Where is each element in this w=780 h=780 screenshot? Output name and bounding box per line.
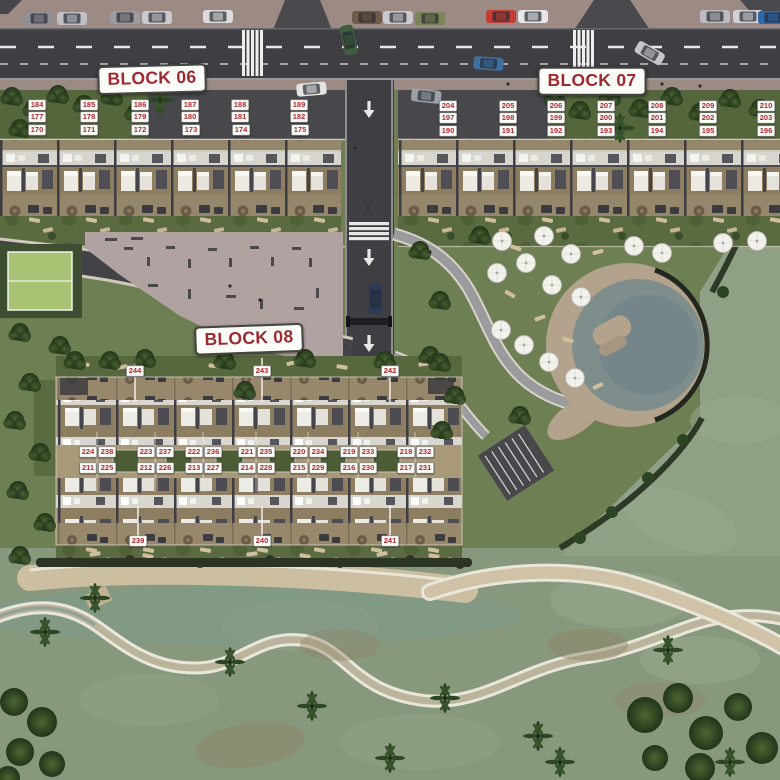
unit-label-200[interactable]: 200: [597, 112, 615, 123]
unit-label-185[interactable]: 185: [80, 99, 98, 110]
unit-label-199[interactable]: 199: [547, 112, 565, 123]
unit-label-221[interactable]: 221: [238, 446, 256, 457]
unit-label-232[interactable]: 232: [416, 446, 434, 457]
unit-label-189[interactable]: 189: [290, 99, 308, 110]
unit-label-231[interactable]: 231: [416, 462, 434, 473]
unit-label-205[interactable]: 205: [499, 100, 517, 111]
unit-label-198[interactable]: 198: [499, 112, 517, 123]
unit-label-172[interactable]: 172: [131, 124, 149, 135]
unit-label-214[interactable]: 214: [238, 462, 256, 473]
unit-label-192[interactable]: 192: [547, 125, 565, 136]
unit-label-230[interactable]: 230: [359, 462, 377, 473]
unit-label-197[interactable]: 197: [439, 112, 457, 123]
unit-label-241[interactable]: 241: [381, 535, 399, 546]
unit-label-193[interactable]: 193: [597, 125, 615, 136]
unit-label-194[interactable]: 194: [648, 125, 666, 136]
unit-label-206[interactable]: 206: [547, 100, 565, 111]
unit-label-171[interactable]: 171: [80, 124, 98, 135]
unit-label-186[interactable]: 186: [131, 99, 149, 110]
unit-label-187[interactable]: 187: [181, 99, 199, 110]
unit-label-170[interactable]: 170: [28, 124, 46, 135]
unit-label-243[interactable]: 243: [253, 365, 271, 376]
unit-label-190[interactable]: 190: [439, 125, 457, 136]
unit-label-196[interactable]: 196: [757, 125, 775, 136]
unit-label-184[interactable]: 184: [28, 99, 46, 110]
unit-label-235[interactable]: 235: [257, 446, 275, 457]
unit-label-227[interactable]: 227: [204, 462, 222, 473]
unit-label-222[interactable]: 222: [185, 446, 203, 457]
unit-label-211[interactable]: 211: [79, 462, 96, 473]
unit-label-237[interactable]: 237: [156, 446, 174, 457]
unit-label-181[interactable]: 181: [231, 111, 249, 122]
labels-layer: BLOCK 06 BLOCK 07 BLOCK 08 1841851861871…: [0, 0, 780, 780]
unit-label-213[interactable]: 213: [185, 462, 203, 473]
masterplan-canvas: BLOCK 06 BLOCK 07 BLOCK 08 1841851861871…: [0, 0, 780, 780]
unit-label-210[interactable]: 210: [757, 100, 775, 111]
unit-label-177[interactable]: 177: [28, 111, 46, 122]
unit-label-203[interactable]: 203: [757, 112, 775, 123]
unit-label-229[interactable]: 229: [309, 462, 327, 473]
unit-label-216[interactable]: 216: [340, 462, 358, 473]
unit-label-182[interactable]: 182: [290, 111, 308, 122]
unit-label-226[interactable]: 226: [156, 462, 174, 473]
unit-label-225[interactable]: 225: [98, 462, 116, 473]
unit-label-208[interactable]: 208: [648, 100, 666, 111]
unit-label-223[interactable]: 223: [137, 446, 155, 457]
unit-label-215[interactable]: 215: [290, 462, 308, 473]
unit-label-224[interactable]: 224: [79, 446, 97, 457]
unit-label-191[interactable]: 191: [499, 125, 517, 136]
unit-label-240[interactable]: 240: [253, 535, 271, 546]
unit-label-233[interactable]: 233: [359, 446, 377, 457]
unit-label-179[interactable]: 179: [131, 111, 149, 122]
unit-label-201[interactable]: 201: [648, 112, 666, 123]
unit-label-178[interactable]: 178: [80, 111, 98, 122]
unit-label-236[interactable]: 236: [204, 446, 222, 457]
unit-label-202[interactable]: 202: [699, 112, 717, 123]
unit-label-217[interactable]: 217: [397, 462, 415, 473]
block-06-sign[interactable]: BLOCK 06: [97, 63, 207, 94]
unit-label-195[interactable]: 195: [699, 125, 717, 136]
unit-label-244[interactable]: 244: [126, 365, 144, 376]
unit-label-175[interactable]: 175: [291, 124, 309, 135]
unit-label-207[interactable]: 207: [597, 100, 615, 111]
unit-label-238[interactable]: 238: [98, 446, 116, 457]
block-07-sign[interactable]: BLOCK 07: [538, 67, 647, 96]
unit-label-180[interactable]: 180: [181, 111, 199, 122]
unit-label-219[interactable]: 219: [340, 446, 358, 457]
unit-label-242[interactable]: 242: [381, 365, 399, 376]
unit-label-220[interactable]: 220: [290, 446, 308, 457]
unit-label-174[interactable]: 174: [232, 124, 250, 135]
unit-label-209[interactable]: 209: [699, 100, 717, 111]
unit-label-173[interactable]: 173: [182, 124, 200, 135]
unit-label-234[interactable]: 234: [309, 446, 327, 457]
unit-label-212[interactable]: 212: [137, 462, 155, 473]
unit-label-188[interactable]: 188: [231, 99, 249, 110]
unit-label-228[interactable]: 228: [257, 462, 275, 473]
unit-label-218[interactable]: 218: [397, 446, 415, 457]
unit-label-204[interactable]: 204: [439, 100, 457, 111]
block-08-sign[interactable]: BLOCK 08: [194, 323, 304, 355]
unit-label-239[interactable]: 239: [129, 535, 147, 546]
